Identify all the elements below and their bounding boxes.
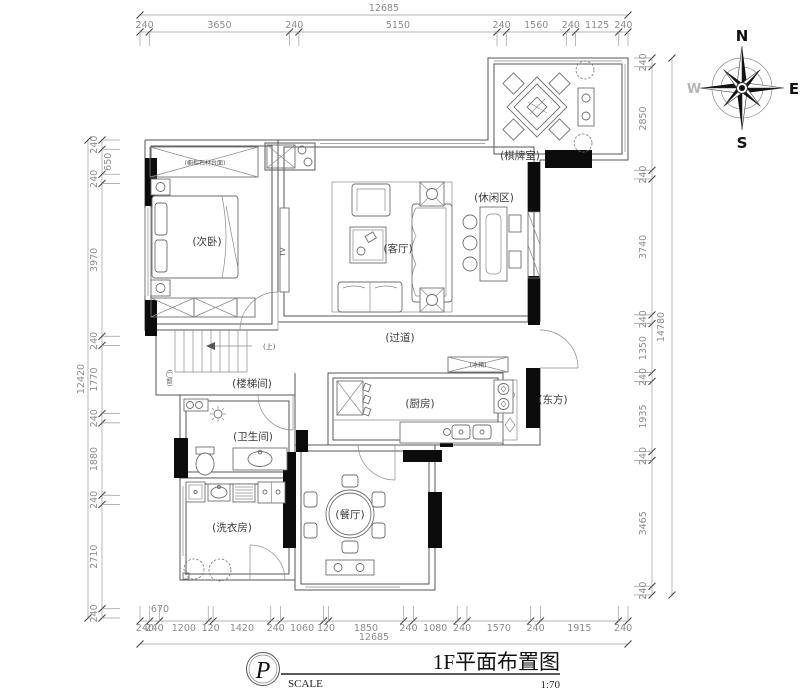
dimension-label: 240 [146, 623, 164, 634]
chair [342, 475, 358, 487]
dimension-label: 240 [638, 447, 649, 465]
scale-label: SCALE [288, 678, 323, 690]
dim-total-right: 14780 [656, 312, 667, 342]
wall-segment [528, 276, 540, 325]
dimension-label: 240 [89, 332, 100, 350]
stairwell-label: (楼梯间) [232, 377, 272, 390]
dimension-label: 240 [638, 53, 649, 71]
dimension-label: 3650 [207, 20, 231, 31]
sink [400, 422, 503, 443]
dimension-label: 1880 [89, 447, 100, 471]
compass-south-label: S [737, 134, 748, 152]
leisure-label: (休闲区) [474, 191, 514, 204]
laundry-door [250, 545, 285, 580]
cabinet [258, 482, 285, 503]
cabinet [578, 88, 594, 126]
entrance-door [540, 330, 578, 368]
compass-rose: N E S W [687, 27, 799, 152]
armchair [352, 184, 390, 216]
compass-north-label: N [736, 27, 749, 45]
stair-arrow-icon [206, 342, 215, 350]
chair [509, 251, 521, 268]
dimension-label: 240 [453, 623, 471, 634]
dimension-label: 1850 [354, 623, 378, 634]
plant-icon [574, 134, 592, 152]
compass-west-label: W [687, 82, 701, 97]
floor-plan-drawing: (次卧) (橱柜石材台面) TV (客厅) (休闲区) (棋牌室) (过道) (… [0, 0, 800, 694]
side-table [420, 182, 444, 206]
shelf [184, 399, 208, 411]
sideboard [326, 560, 374, 575]
dim-total-left: 12420 [76, 364, 87, 394]
stove [494, 380, 513, 413]
loveseat [338, 282, 402, 312]
dimension-label: 240 [638, 368, 649, 386]
living-label: (客厅) [383, 242, 412, 255]
stair-door-label: (暗门) [166, 370, 174, 387]
dimension-label: 240 [89, 136, 100, 154]
chess-room [503, 61, 594, 152]
corridor-label: (过道) [385, 331, 414, 344]
fridge-label: (冰箱) [470, 361, 487, 369]
dimension-chains: 2403650240515024015602401125240240240120… [89, 20, 656, 634]
dimension-label: 240 [89, 409, 100, 427]
leisure-area [463, 207, 521, 281]
dimension-label: 240 [493, 20, 511, 31]
chair [549, 73, 570, 94]
stair-up-label: (上) [263, 342, 276, 351]
floor-plan-page: (次卧) (橱柜石材台面) TV (客厅) (休闲区) (棋牌室) (过道) (… [0, 0, 800, 694]
compass-east-label: E [789, 80, 799, 98]
closet-note-label: (橱柜石材台面) [185, 159, 226, 167]
dimension-label: 1350 [638, 336, 649, 360]
wall-segment [403, 450, 442, 462]
dimension-label: 240 [527, 623, 545, 634]
dimension-label: 1570 [487, 623, 511, 634]
wall-segment [428, 492, 442, 548]
bathroom-door [258, 395, 293, 430]
nightstand [151, 179, 170, 195]
chess-label: (棋牌室) [500, 149, 540, 162]
laundry-sink [208, 484, 230, 501]
bedroom-label: (次卧) [192, 235, 221, 248]
sofa [412, 204, 452, 302]
tv-label: TV [279, 247, 287, 257]
dimension-label: 3740 [638, 235, 649, 259]
bathroom-label: (卫生间) [233, 430, 273, 443]
dimension-label: 1200 [172, 623, 196, 634]
dimension-label: 240 [638, 166, 649, 184]
dimension-label: 1420 [230, 623, 254, 634]
dimension-label: 1060 [290, 623, 314, 634]
wall-segment [296, 430, 308, 452]
stool [463, 236, 477, 250]
dimension-label: 3465 [638, 511, 649, 535]
dimension-label: 240 [638, 582, 649, 600]
dim-inner-bottom: 670 [151, 604, 169, 615]
laundry-label: (洗衣房) [212, 521, 252, 534]
dimension-label: 1125 [585, 20, 609, 31]
wall-segment [174, 438, 188, 478]
chair [304, 492, 317, 507]
walls [145, 58, 628, 590]
dimension-label: 5150 [386, 20, 410, 31]
dimension-label: 240 [614, 20, 632, 31]
stair-treads [175, 330, 247, 372]
title-block: P 1F平面布置图 SCALE 1:70 [247, 650, 561, 691]
chair [503, 119, 524, 140]
chair [372, 492, 385, 507]
dimension-label: 240 [267, 623, 285, 634]
dimension-label: 120 [202, 623, 220, 634]
window-bedroom-west [145, 208, 151, 296]
stairwell [175, 330, 252, 372]
dining-door [358, 445, 395, 480]
dimension-label: 240 [136, 20, 154, 31]
dimension-label: 1770 [89, 367, 100, 391]
dimension-label: 240 [638, 310, 649, 328]
dimension-label: 1915 [567, 623, 591, 634]
dimension-label: 3970 [89, 248, 100, 272]
dimension-label: 650 [103, 153, 114, 171]
nightstand [151, 280, 170, 296]
dimension-label: 240 [562, 20, 580, 31]
dining-room [304, 475, 385, 575]
chair [372, 523, 385, 538]
plant-icon [184, 559, 204, 579]
leisure-table [480, 207, 507, 281]
chair [509, 215, 521, 232]
toilet [196, 447, 214, 475]
dimension-label: 240 [89, 491, 100, 509]
dimension-label: 240 [614, 623, 632, 634]
dimension-label: 240 [89, 604, 100, 622]
stool [463, 215, 477, 229]
chair [342, 541, 358, 553]
side-table [420, 288, 444, 312]
chair [503, 73, 524, 94]
dimension-label: 240 [399, 623, 417, 634]
wall-segment [545, 150, 592, 168]
dining-label: (餐厅) [335, 508, 364, 521]
tea-cabinet [267, 145, 312, 168]
dimension-label: 1080 [423, 623, 447, 634]
vanity-sink [233, 448, 287, 470]
dimension-label: 1560 [524, 20, 548, 31]
dimension-label: 2850 [638, 106, 649, 130]
dimension-label: 1935 [638, 404, 649, 428]
coffee-table [350, 227, 386, 263]
wall-segment [528, 162, 540, 212]
kitchen-label: (厨房) [405, 397, 434, 410]
dimension-label: 2710 [89, 545, 100, 569]
plant-icon [209, 559, 231, 581]
east-label: (东方) [538, 393, 567, 406]
title-logo: P [255, 658, 271, 684]
ceiling-lamp-icon [210, 406, 226, 422]
dimension-label: 240 [89, 170, 100, 188]
dimension-label: 240 [285, 20, 303, 31]
stool [463, 257, 477, 271]
chair [304, 523, 317, 538]
drying-rack [233, 484, 255, 502]
drawing-title: 1F平面布置图 [433, 650, 560, 674]
wardrobe [151, 298, 255, 317]
scale-value: 1:70 [540, 679, 560, 691]
dim-total-top: 12685 [369, 3, 399, 14]
cooktop-island [337, 381, 371, 416]
dimension-label: 120 [317, 623, 335, 634]
living-room [280, 182, 452, 312]
washer [186, 482, 205, 502]
